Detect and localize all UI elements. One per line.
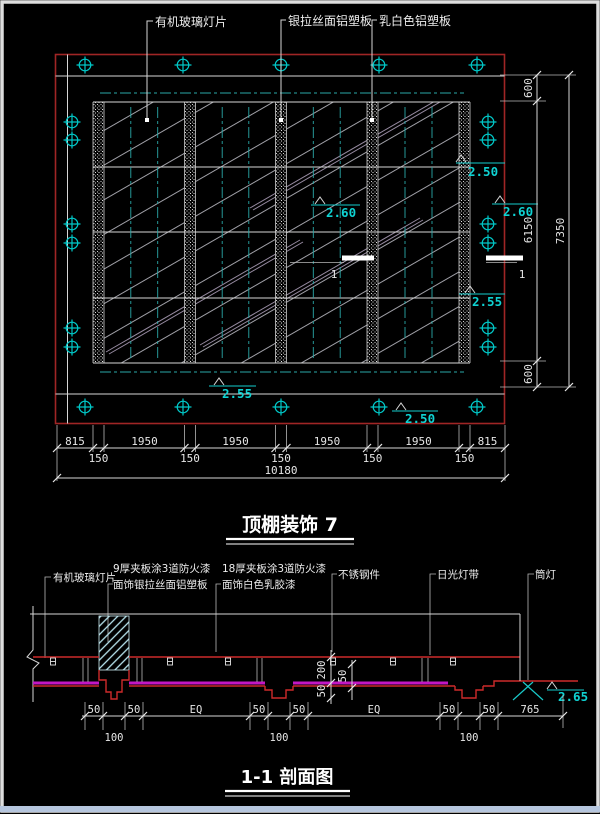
target-icon (64, 339, 81, 356)
dim-150: 150 (180, 452, 200, 465)
elevation-value: 2.55 (472, 294, 502, 309)
cad-drawing-page: 有机玻璃灯片 银拉丝面铝塑板 乳白色铝塑板 2.50 2.60 2.60 2.5… (0, 0, 600, 814)
callout-18mm-plywood-line2: 面饰白色乳胶漆 (222, 578, 296, 591)
dim-765: 765 (521, 704, 540, 716)
target-icon (480, 320, 497, 337)
target-icon (469, 57, 486, 74)
callout-18mm-plywood-line1: 18厚夹板涂3道防火漆 (222, 562, 327, 575)
target-icon (64, 320, 81, 337)
dim-1950: 1950 (314, 435, 341, 448)
dim-right-total: 7350 (554, 218, 567, 245)
plan-title: 顶棚装饰 7 (242, 513, 338, 536)
dim-100: 100 (105, 732, 124, 744)
target-icon (371, 399, 388, 416)
lamp-icon (391, 658, 396, 665)
vdim-200: 200 (316, 661, 328, 680)
callout-stainless-steel: 不锈钢件 (338, 568, 380, 581)
section-vertical-dims: 200 50 50 (316, 650, 356, 704)
leader-dot (370, 118, 374, 122)
target-icon (175, 399, 192, 416)
dim-right-600-bottom: 600 (522, 364, 535, 384)
dim-50: 50 (253, 704, 266, 716)
section-view: 有机玻璃灯片 9厚夹板涂3道防火漆 面饰银拉丝面铝塑板 18厚夹板涂3道防火漆 … (27, 562, 588, 796)
lamp-icon (168, 658, 173, 665)
vdim-50: 50 (316, 685, 328, 698)
callout-9mm-plywood-line2: 面饰银拉丝面铝塑板 (113, 578, 208, 591)
plan-callout-milky-white: 乳白色铝塑板 (379, 13, 451, 28)
ceiling-plan-view: 有机玻璃灯片 银拉丝面铝塑板 乳白色铝塑板 2.50 2.60 2.60 2.5… (53, 13, 576, 544)
cad-canvas: 有机玻璃灯片 银拉丝面铝塑板 乳白色铝塑板 2.50 2.60 2.60 2.5… (0, 0, 600, 814)
elevation-value: 2.55 (222, 386, 252, 401)
dim-eq: EQ (190, 704, 203, 716)
dim-1950: 1950 (222, 435, 249, 448)
target-icon (480, 235, 497, 252)
target-icon (175, 57, 192, 74)
dim-total-10180: 10180 (264, 464, 297, 477)
lamp-icon (51, 658, 56, 665)
cut-number: 1 (519, 268, 526, 281)
target-icon (77, 57, 94, 74)
cut-number: 1 (331, 268, 338, 281)
dim-150: 150 (363, 452, 383, 465)
target-icon (480, 114, 497, 131)
lamp-icon (226, 658, 231, 665)
target-icon (64, 235, 81, 252)
elevation-value: 2.50 (405, 411, 435, 426)
target-icon (273, 399, 290, 416)
dim-50: 50 (88, 704, 101, 716)
elevation-value: 2.60 (503, 204, 533, 219)
target-icon (371, 57, 388, 74)
target-icon (480, 339, 497, 356)
leader-dot (145, 118, 149, 122)
target-icon (480, 216, 497, 233)
downlight-icon (513, 682, 543, 700)
break-line (27, 606, 39, 702)
dim-50: 50 (128, 704, 141, 716)
dim-right-600-top: 600 (522, 78, 535, 98)
dim-1950: 1950 (405, 435, 432, 448)
cut-bar (342, 256, 374, 261)
elevation-value: 2.50 (468, 164, 498, 179)
dim-100: 100 (460, 732, 479, 744)
plan-callout-brushed-aluminium: 银拉丝面铝塑板 (288, 13, 372, 28)
callout-fluorescent-strip: 日光灯带 (437, 568, 479, 581)
target-icon (77, 399, 94, 416)
plan-callout-acrylic: 有机玻璃灯片 (155, 15, 227, 29)
target-icon (64, 114, 81, 131)
plan-right-dims: 600 6150 600 7350 (500, 71, 576, 391)
elevation-value: 2.60 (326, 205, 356, 220)
dim-100: 100 (270, 732, 289, 744)
dim-150: 150 (89, 452, 109, 465)
section-elevation-value: 2.65 (558, 689, 588, 704)
target-icon (64, 216, 81, 233)
lamp-icon (451, 658, 456, 665)
dim-815-right: 815 (478, 435, 498, 448)
hatched-plywood-column (99, 616, 129, 670)
dim-50: 50 (293, 704, 306, 716)
section-title-block: 1-1 剖面图 (225, 766, 350, 796)
dim-eq: EQ (368, 704, 381, 716)
cut-bar (486, 256, 523, 261)
dim-815-left: 815 (65, 435, 85, 448)
section-geometry: 2.65 (27, 606, 588, 704)
callout-9mm-plywood-line1: 9厚夹板涂3道防火漆 (113, 562, 211, 575)
dim-right-6150: 6150 (522, 217, 535, 244)
elevation-triangle (547, 682, 557, 689)
dim-1950: 1950 (131, 435, 158, 448)
vdim-50b: 50 (337, 670, 349, 683)
plan-title-block: 顶棚装饰 7 (226, 513, 354, 544)
callout-acrylic-panel: 有机玻璃灯片 (53, 571, 116, 584)
target-icon (64, 132, 81, 149)
section-bottom-dims: 50 50 50 50 50 50 100 100 100 EQ EQ 765 (81, 695, 567, 744)
dim-150: 150 (455, 452, 475, 465)
target-icon (480, 132, 497, 149)
leader-dot (279, 118, 283, 122)
target-icon (469, 399, 486, 416)
cove-walls (83, 658, 428, 682)
section-title: 1-1 剖面图 (241, 766, 334, 788)
callout-downlight: 筒灯 (535, 568, 556, 581)
dim-50: 50 (443, 704, 456, 716)
plan-bottom-dims: 815 1950 1950 1950 1950 815 150 150 150 … (53, 425, 509, 482)
dim-50: 50 (483, 704, 496, 716)
